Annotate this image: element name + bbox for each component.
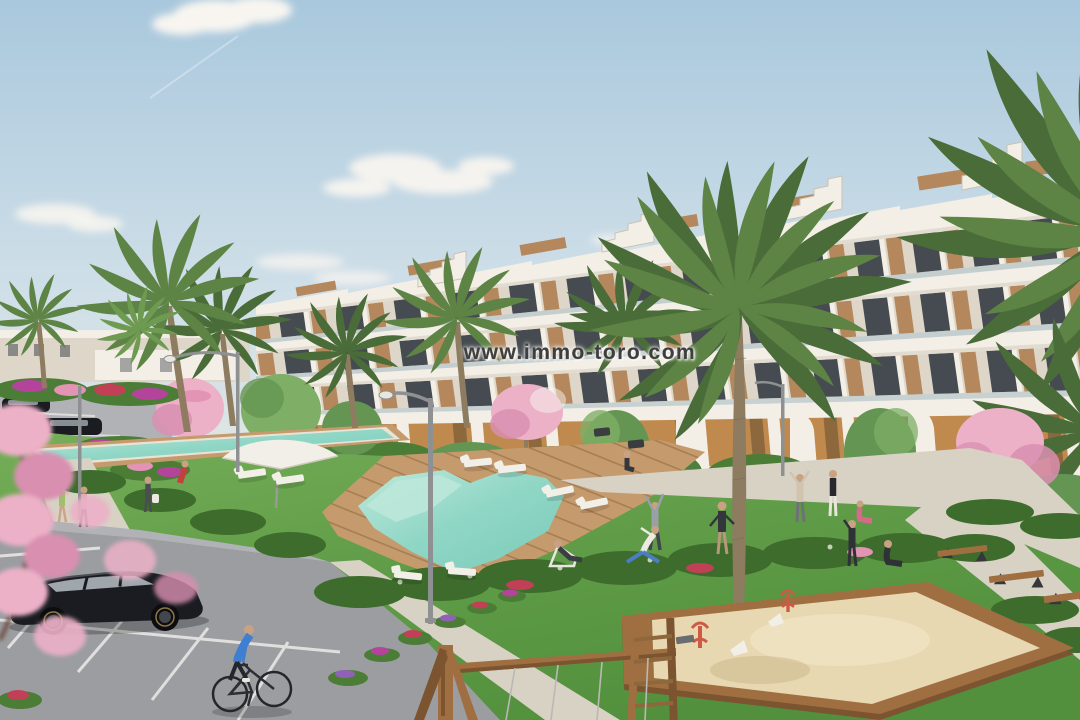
architectural-rendering: www.immo-toro.com — [0, 0, 1080, 720]
garden-chair-1 — [594, 427, 611, 437]
garden-chair-2 — [628, 439, 645, 449]
watermark-text: www.immo-toro.com — [420, 341, 740, 365]
